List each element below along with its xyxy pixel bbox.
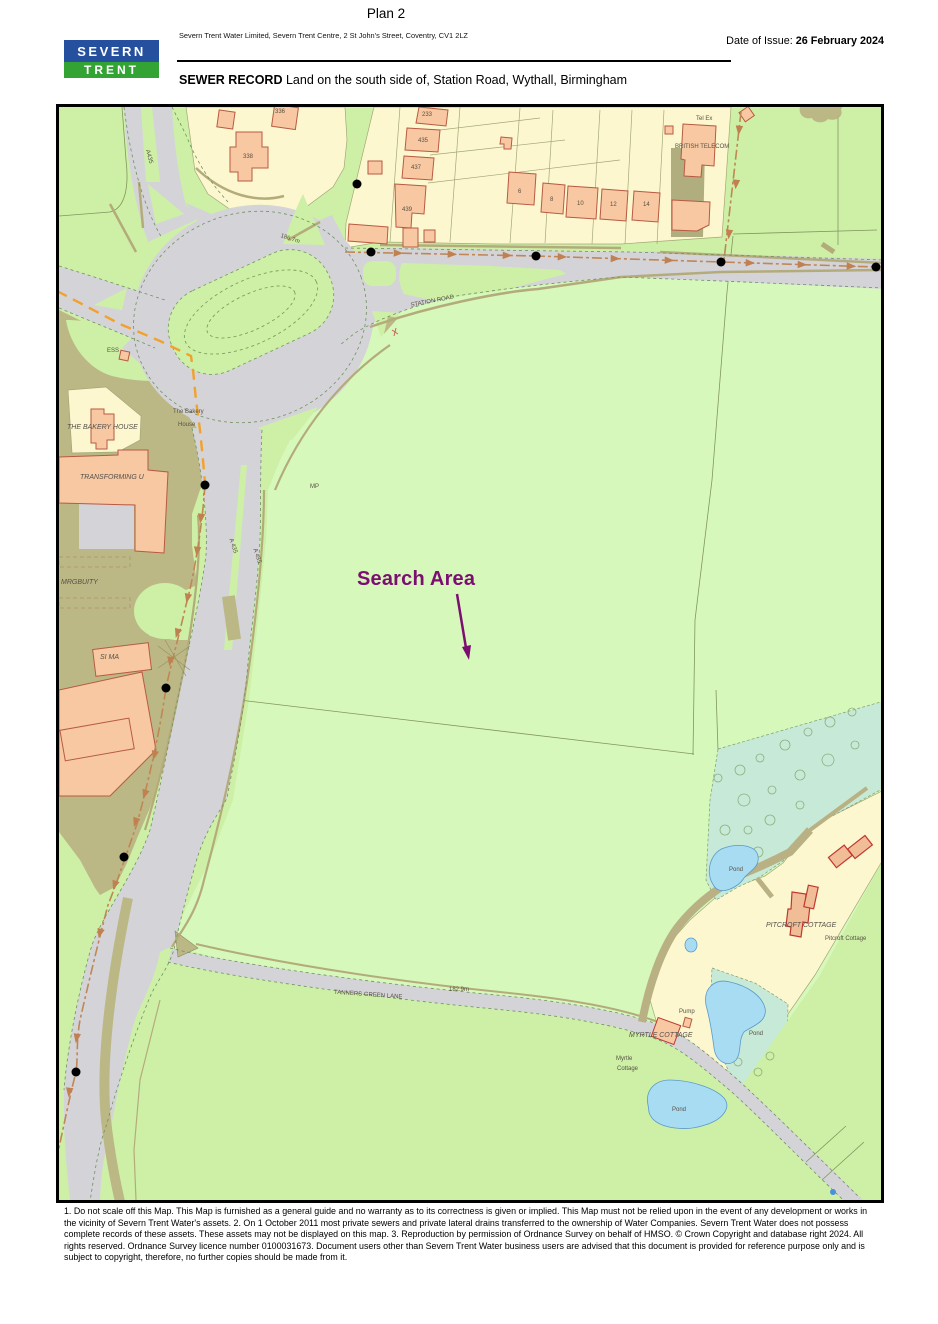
svg-text:182.9m: 182.9m [449, 987, 469, 993]
svg-text:MYRTLE COTTAGE: MYRTLE COTTAGE [629, 1032, 693, 1039]
svg-text:MRGBUITY: MRGBUITY [61, 579, 99, 586]
svg-text:PITCROFT COTTAGE: PITCROFT COTTAGE [766, 922, 837, 929]
svg-text:House: House [178, 422, 196, 428]
svg-text:The Bakery: The Bakery [173, 409, 204, 415]
svg-text:Pitcroft Cottage: Pitcroft Cottage [825, 936, 867, 942]
svg-text:Search Area: Search Area [357, 568, 476, 590]
svg-text:Cottage: Cottage [617, 1066, 639, 1072]
svg-text:437: 437 [411, 165, 422, 171]
svg-text:233: 233 [422, 112, 433, 118]
svg-text:10: 10 [577, 201, 584, 207]
svg-text:ESS: ESS [107, 348, 119, 354]
svg-text:Pond: Pond [729, 867, 743, 873]
svg-text:439: 439 [402, 207, 413, 213]
svg-text:336: 336 [275, 109, 286, 115]
svg-text:338: 338 [243, 154, 254, 160]
svg-text:435: 435 [418, 138, 429, 144]
svg-text:Tel Ex: Tel Ex [696, 116, 712, 122]
svg-text:Pond: Pond [672, 1107, 686, 1113]
svg-text:Pump: Pump [679, 1009, 695, 1015]
svg-text:THE BAKERY HOUSE: THE BAKERY HOUSE [67, 424, 138, 431]
svg-text:TRANSFORMING U: TRANSFORMING U [80, 474, 145, 481]
svg-text:14: 14 [643, 202, 650, 208]
svg-text:12: 12 [610, 202, 617, 208]
svg-text:SI MA: SI MA [100, 654, 119, 661]
svg-text:MP: MP [310, 484, 319, 490]
svg-text:Pond: Pond [749, 1031, 763, 1037]
svg-text:Myrtle: Myrtle [616, 1056, 633, 1062]
svg-text:BRITISH TELECOM: BRITISH TELECOM [675, 144, 729, 150]
